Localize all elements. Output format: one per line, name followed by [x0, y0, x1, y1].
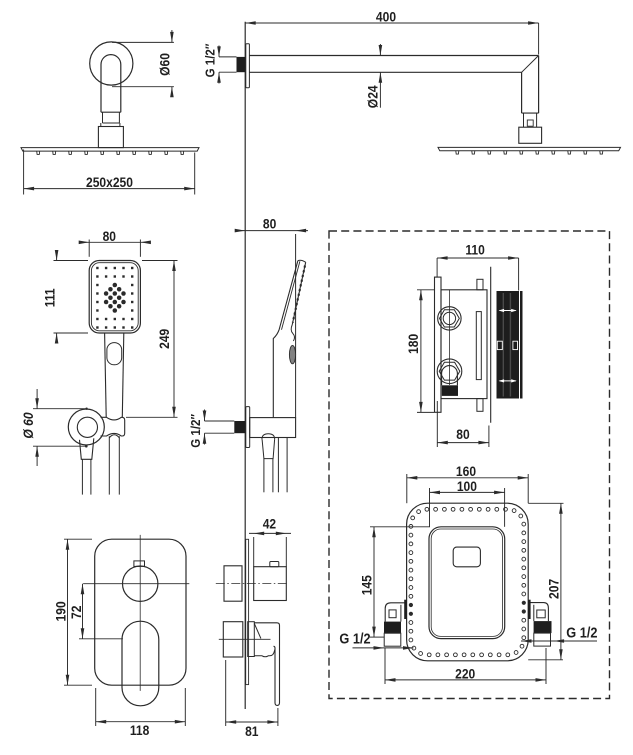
svg-text:110: 110 — [465, 242, 484, 258]
svg-text:G 1/2″: G 1/2″ — [188, 414, 203, 448]
svg-text:190: 190 — [53, 601, 69, 621]
svg-text:G 1/2: G 1/2 — [566, 625, 598, 641]
svg-text:Ø60: Ø60 — [157, 53, 173, 76]
svg-text:400: 400 — [376, 9, 396, 25]
svg-text:G 1/2: G 1/2 — [339, 631, 371, 647]
svg-text:249: 249 — [156, 329, 172, 349]
svg-text:111: 111 — [42, 288, 58, 307]
svg-text:180: 180 — [405, 334, 421, 354]
svg-text:72: 72 — [68, 606, 84, 619]
svg-text:42: 42 — [263, 516, 276, 532]
svg-text:Ø24: Ø24 — [365, 85, 381, 109]
svg-text:118: 118 — [130, 722, 149, 738]
svg-text:81: 81 — [245, 723, 258, 739]
svg-text:80: 80 — [103, 228, 116, 244]
svg-text:207: 207 — [546, 579, 562, 599]
svg-text:250x250: 250x250 — [86, 174, 133, 190]
svg-text:G 1/2″: G 1/2″ — [203, 44, 218, 78]
svg-text:80: 80 — [263, 216, 276, 232]
svg-text:145: 145 — [359, 575, 375, 595]
svg-text:160: 160 — [456, 463, 476, 479]
svg-text:80: 80 — [456, 426, 469, 442]
svg-text:Ø 60: Ø 60 — [20, 412, 36, 439]
svg-text:220: 220 — [455, 666, 475, 682]
svg-text:100: 100 — [457, 478, 477, 494]
